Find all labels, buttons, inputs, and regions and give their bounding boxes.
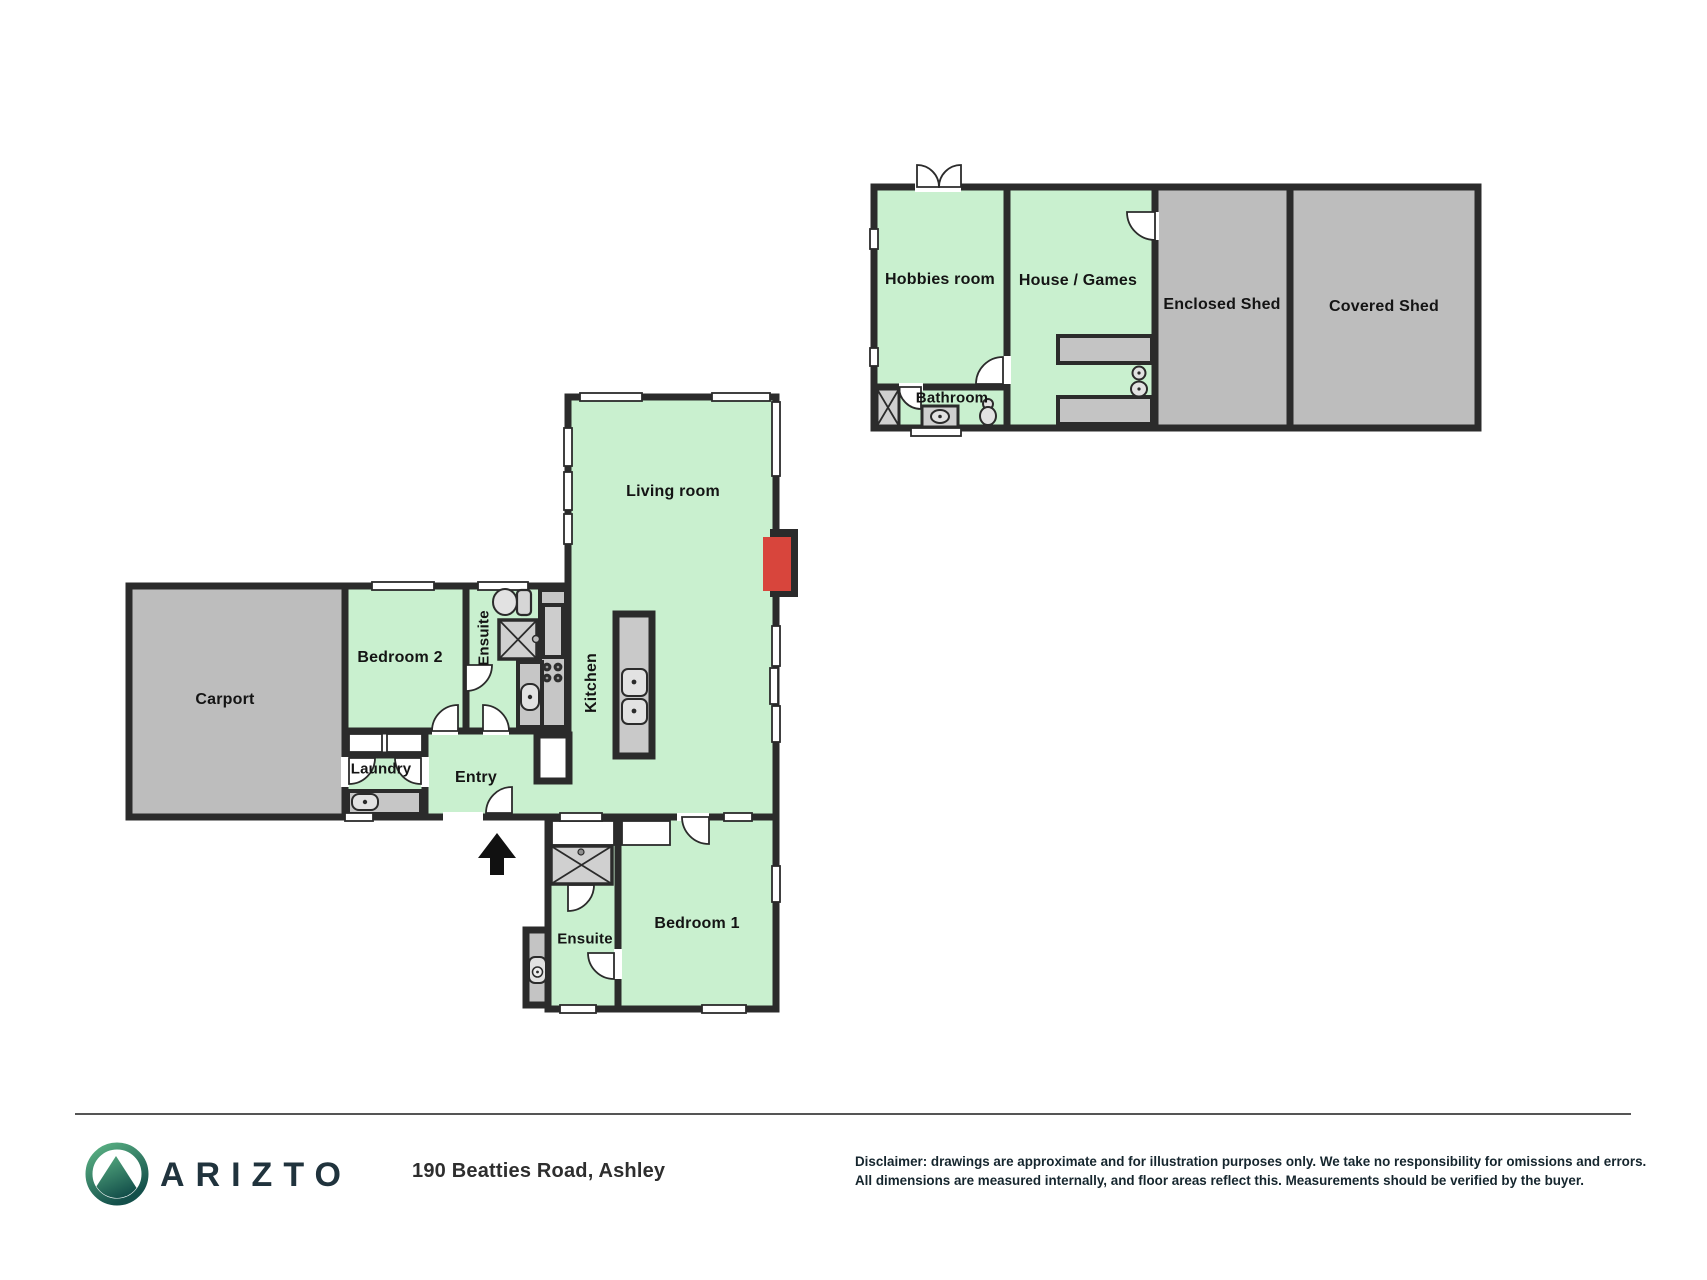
- floorplan-page: Living room Kitchen Bedroom 2 Ensuite Ca…: [0, 0, 1707, 1280]
- door-gap: [341, 757, 349, 787]
- pantry-cupboard: [537, 735, 569, 781]
- window: [560, 1005, 596, 1013]
- room-label-bedroom-2: Bedroom 2: [357, 649, 442, 667]
- door-gap: [1003, 356, 1011, 384]
- island-sink-icon: [622, 669, 647, 724]
- door-arc: [917, 165, 939, 187]
- footer-divider: [75, 1113, 1631, 1115]
- room-label-hobbies: Hobbies room: [885, 271, 995, 289]
- room-label-laundry: Laundry: [351, 761, 412, 778]
- room-label-covered-shed: Covered Shed: [1329, 298, 1439, 316]
- hall-closet-left: [349, 734, 382, 752]
- door-gap: [421, 757, 429, 787]
- room-label-entry: Entry: [455, 769, 497, 787]
- entry-arrow-icon: [478, 833, 516, 875]
- window: [724, 813, 752, 821]
- window: [564, 428, 572, 466]
- disclaimer-line-2: All dimensions are measured internally, …: [855, 1172, 1655, 1191]
- window: [772, 866, 780, 902]
- window: [345, 813, 373, 821]
- fireplace: [763, 529, 798, 597]
- brand-name: ARIZTO: [160, 1156, 352, 1195]
- window: [870, 229, 878, 249]
- door-gap: [614, 949, 622, 979]
- shower-icon-ensuite-top: [499, 620, 540, 659]
- room-label-enclosed-shed: Enclosed Shed: [1163, 296, 1280, 314]
- sink-icon-kitchen-counter: [521, 684, 539, 710]
- window: [372, 582, 434, 590]
- toilet-icon-ensuite-top: [493, 589, 531, 615]
- property-address: 190 Beatties Road, Ashley: [412, 1160, 665, 1183]
- shower-icon-ensuite-bottom: [551, 846, 612, 884]
- room-label-kitchen: Kitchen: [583, 653, 601, 713]
- window: [564, 472, 572, 510]
- toilet-icon-ensuite-bottom: [529, 957, 546, 983]
- bedroom1-closet-left: [552, 821, 614, 845]
- sink-icon-laundry: [352, 794, 378, 810]
- vanity-sink-icon-bathroom: [922, 406, 958, 427]
- window: [870, 348, 878, 366]
- floorplan-drawing: [0, 0, 1707, 1280]
- games-nook-wall-top: [1058, 336, 1152, 363]
- porch-step: [911, 428, 961, 436]
- window: [772, 402, 780, 476]
- window: [770, 668, 778, 704]
- shower-icon-bathroom: [877, 389, 899, 426]
- disclaimer-line-1: Disclaimer: drawings are approximate and…: [855, 1153, 1655, 1172]
- window: [702, 1005, 746, 1013]
- fridge: [543, 605, 563, 657]
- window: [712, 393, 770, 401]
- window: [772, 706, 780, 742]
- room-label-carport: Carport: [195, 691, 254, 709]
- room-label-living-room: Living room: [626, 483, 720, 501]
- window: [580, 393, 642, 401]
- arizto-logo-icon: [84, 1141, 150, 1207]
- room-label-bathroom: Bathroom: [916, 390, 988, 407]
- room-label-house-games: House / Games: [1019, 272, 1137, 290]
- door-gap: [443, 812, 483, 822]
- room-label-bedroom-1: Bedroom 1: [654, 915, 739, 933]
- games-nook-wall-bottom: [1058, 397, 1152, 424]
- hall-closet-right: [387, 734, 422, 752]
- room-label-ensuite-top: Ensuite: [476, 610, 493, 666]
- window: [564, 514, 572, 544]
- disclaimer: Disclaimer: drawings are approximate and…: [855, 1153, 1655, 1190]
- bedroom1-closet-right: [622, 821, 670, 845]
- room-label-ensuite-bottom: Ensuite: [557, 931, 613, 948]
- window: [772, 626, 780, 666]
- door-arc: [939, 165, 961, 187]
- window: [560, 813, 602, 821]
